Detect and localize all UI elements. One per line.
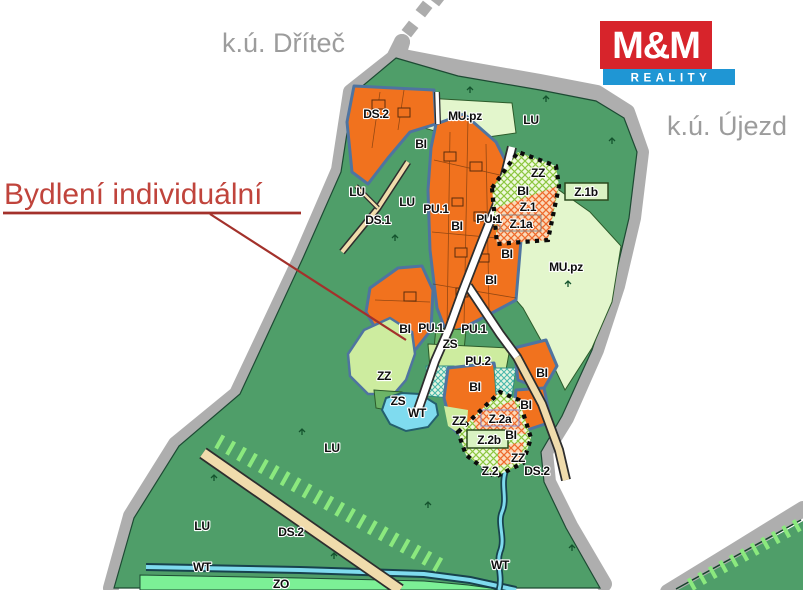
zone-label-pu1: PU.1 bbox=[476, 212, 502, 226]
zone-label-pu2: PU.2 bbox=[465, 354, 491, 368]
zone-label-zs: ZS bbox=[443, 337, 458, 351]
zone-label-mupz: MU.pz bbox=[549, 260, 583, 274]
zone-label-z1: Z.1 bbox=[520, 200, 537, 214]
callout-text: Bydlení individuální bbox=[4, 178, 263, 211]
zone-label-zo: ZO bbox=[273, 577, 289, 590]
zone-label-z1a: Z.1a bbox=[510, 217, 533, 231]
zone-label-ds2: DS.2 bbox=[278, 525, 304, 539]
zone-label-z1b: Z.1b bbox=[574, 185, 597, 199]
cadastre-name-ujezd: k.ú. Újezd bbox=[667, 110, 787, 141]
zone-label-pu1: PU.1 bbox=[418, 321, 444, 335]
zone-label-bi: BI bbox=[517, 184, 528, 198]
zone-label-wt: WT bbox=[193, 560, 212, 574]
zone-label-lu: LU bbox=[194, 519, 209, 533]
zone-label-z2: Z.2 bbox=[482, 464, 499, 478]
zone-label-bi: BI bbox=[505, 428, 516, 442]
zone-label-pu1: PU.1 bbox=[423, 202, 449, 216]
zone-label-z2b: Z.2b bbox=[477, 433, 500, 447]
zone-label-pu1: PU.1 bbox=[461, 322, 487, 336]
zoning-map: DS.2MU.pzLUBIZZBIZ.1Z.1aZ.1bLULUPU.1DS.1… bbox=[0, 0, 803, 590]
zone-label-bi: BI bbox=[536, 366, 547, 380]
zone-label-zz: ZZ bbox=[511, 451, 525, 465]
map-screenshot: DS.2MU.pzLUBIZZBIZ.1Z.1aZ.1bLULUPU.1DS.1… bbox=[0, 0, 803, 590]
zone-label-lu: LU bbox=[349, 185, 364, 199]
zone-label-lu: LU bbox=[399, 195, 414, 209]
zone-label-zz: ZZ bbox=[531, 166, 545, 180]
zone-label-bi: BI bbox=[399, 322, 410, 336]
logo-mm-text: M&M bbox=[612, 25, 700, 67]
logo-reality-text: REALITY bbox=[631, 73, 712, 85]
zone-label-zz: ZZ bbox=[377, 369, 391, 383]
zone-label-wt: WT bbox=[491, 558, 510, 572]
zone-label-bi: BI bbox=[451, 219, 462, 233]
zone-label-mupz: MU.pz bbox=[448, 109, 482, 123]
zone-label-ds1: DS.1 bbox=[365, 213, 391, 227]
zone-label-z2a: Z.2a bbox=[489, 412, 512, 426]
zone-label-bi: BI bbox=[520, 398, 531, 412]
zone-label-bi: BI bbox=[501, 247, 512, 261]
cadastre-name-dritec: k.ú. Dříteč bbox=[222, 28, 345, 58]
zone-label-wt: WT bbox=[408, 406, 427, 420]
zone-label-bi: BI bbox=[415, 137, 426, 151]
zone-label-zz: ZZ bbox=[452, 414, 466, 428]
zone-label-ds2: DS.2 bbox=[363, 107, 389, 121]
zone-label-bi: BI bbox=[485, 273, 496, 287]
zone-label-ds2: DS.2 bbox=[524, 464, 550, 478]
zone-pu2-hatch-right bbox=[494, 368, 516, 396]
zone-label-lu: LU bbox=[324, 441, 339, 455]
zone-label-zs: ZS bbox=[391, 394, 406, 408]
zone-label-bi: BI bbox=[469, 380, 480, 394]
zone-label-lu: LU bbox=[523, 113, 538, 127]
